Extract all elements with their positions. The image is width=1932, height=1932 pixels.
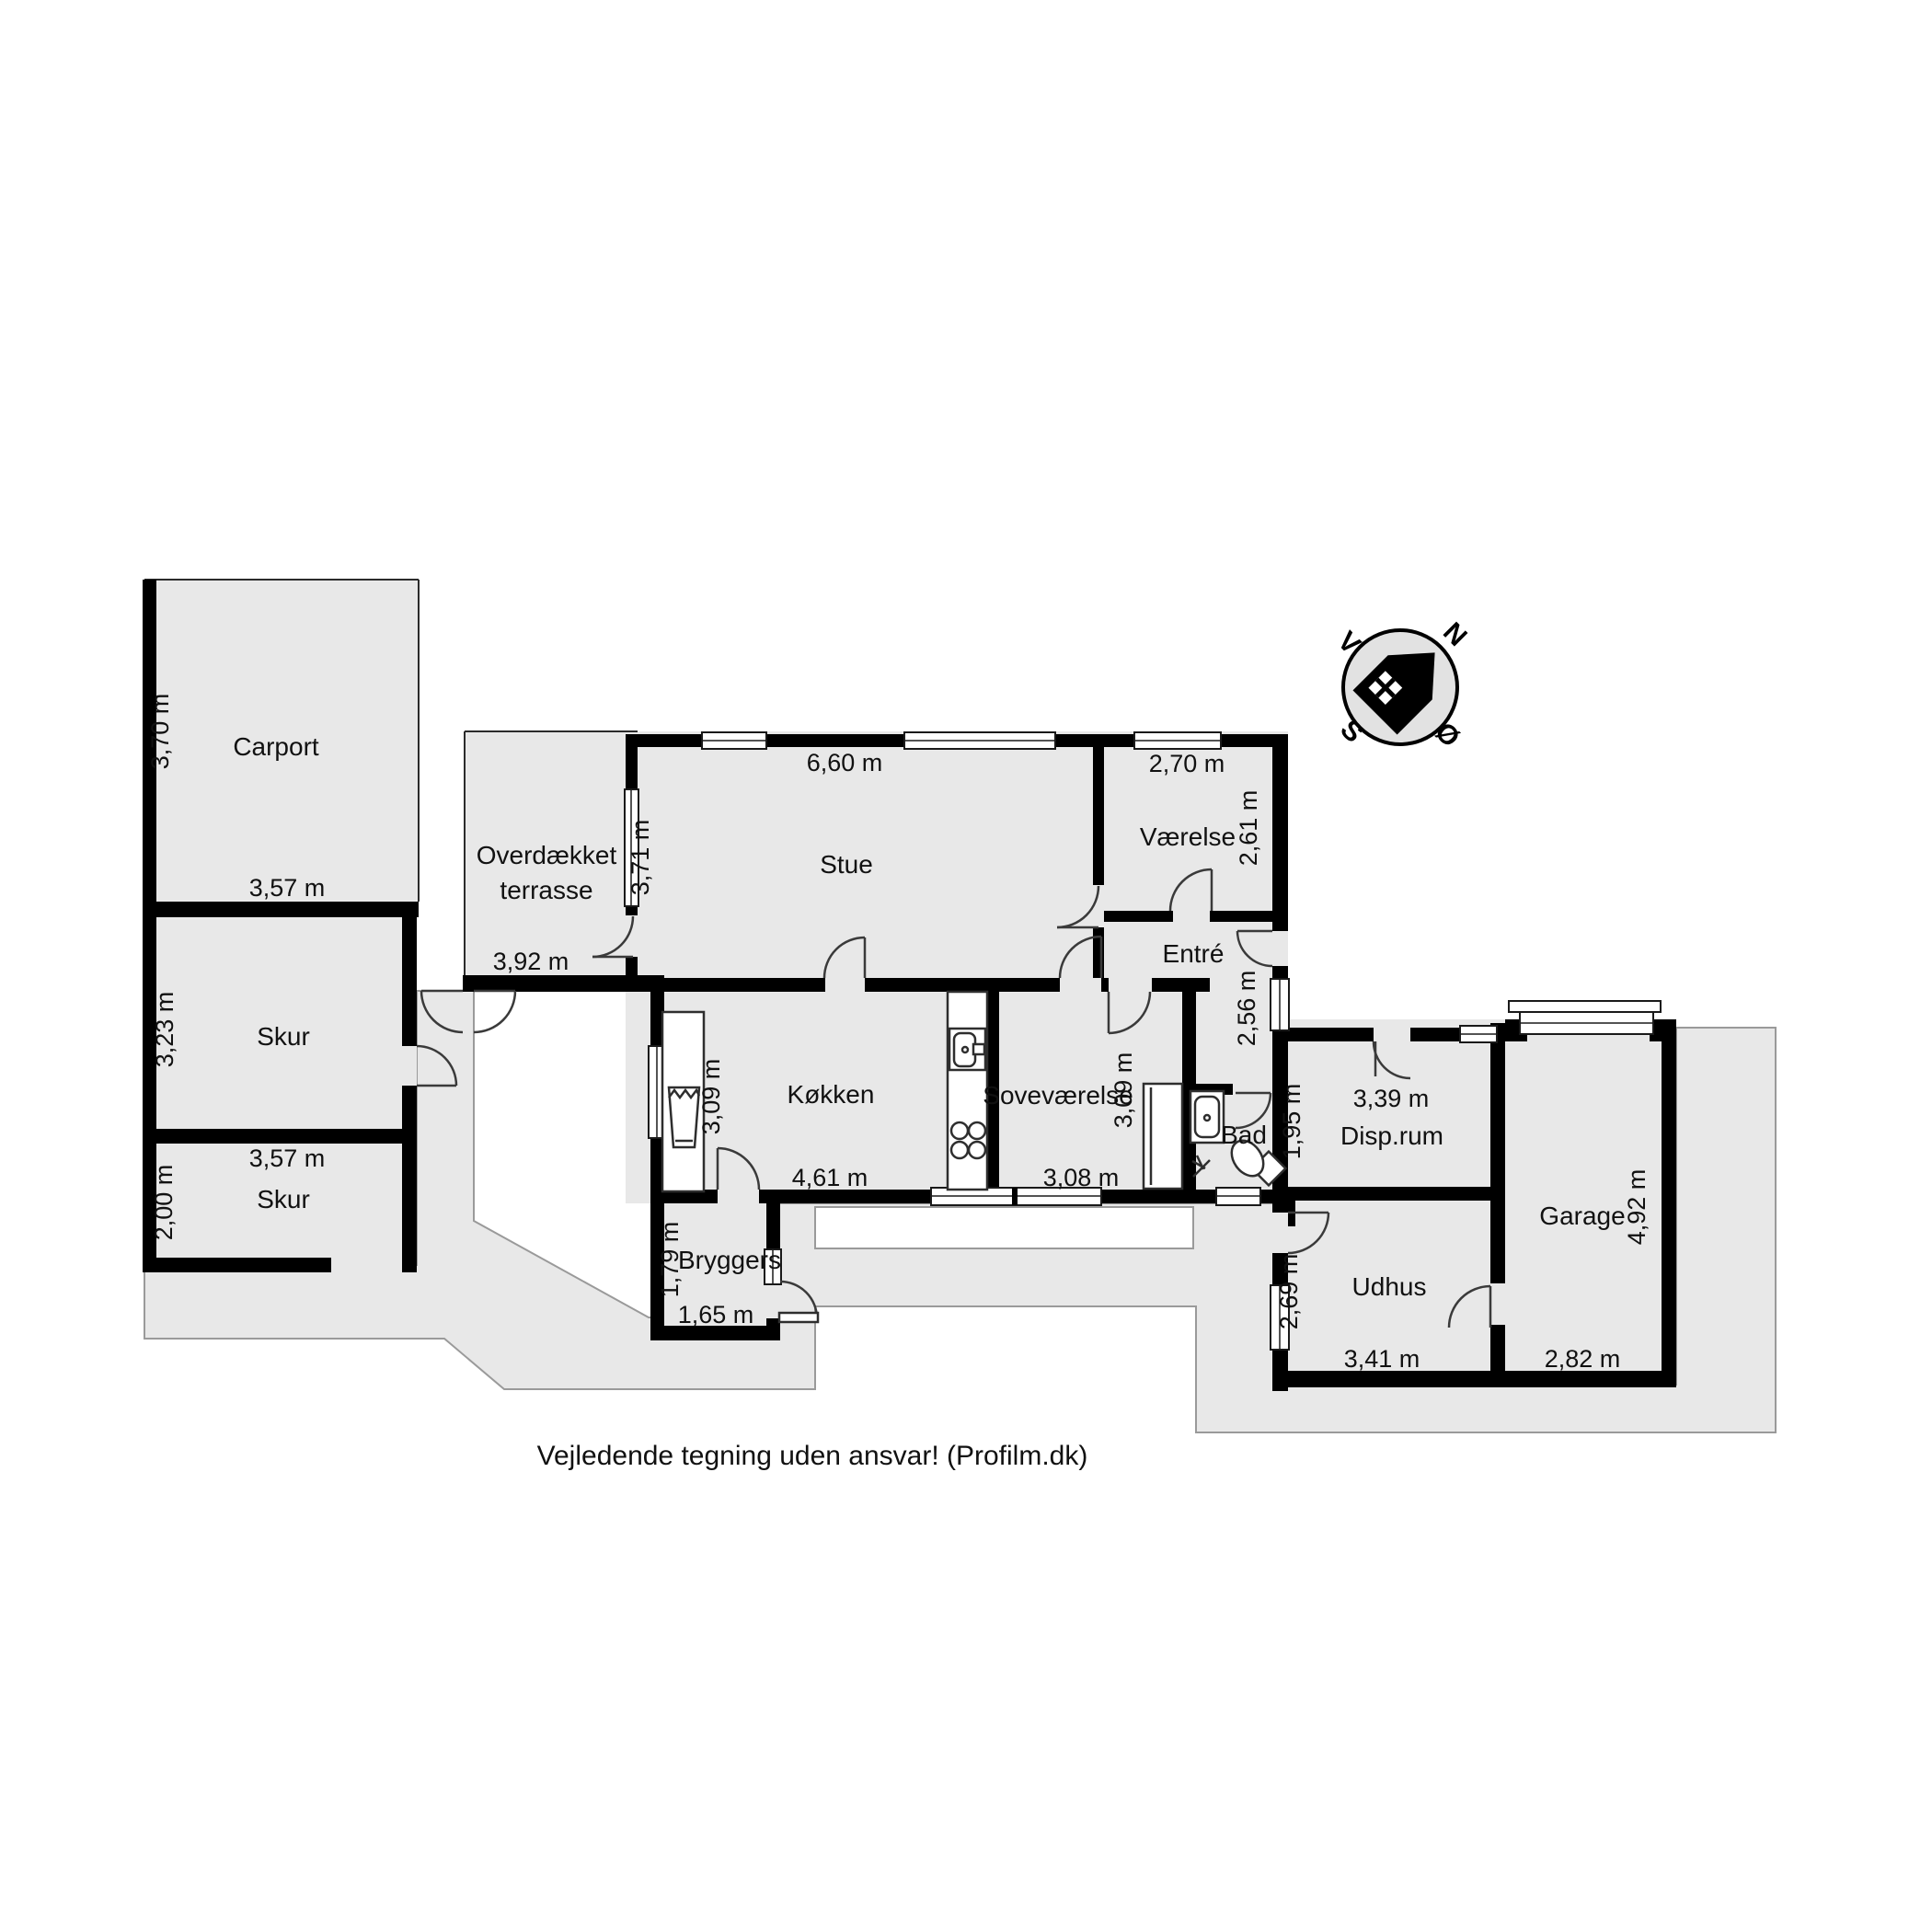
dim-carport-h: 3,57 m [249, 874, 326, 902]
dim-stue-h: 6,60 m [807, 749, 883, 776]
dim-udhus-h: 3,41 m [1344, 1345, 1420, 1373]
floor-skur [144, 902, 417, 1272]
room-label-skur1: Skur [257, 1022, 310, 1051]
room-label-bad: Bad [1221, 1121, 1267, 1149]
dim-skur2-v: 2,00 m [150, 1165, 178, 1241]
floor-plan-page: N Ø S V Carport 3,70 m 3,57 m Skur 3,23 … [0, 0, 1932, 1932]
room-label-terrasse-line1: Overdækket [477, 841, 617, 869]
dim-skur1-h: 3,57 m [249, 1144, 326, 1172]
dim-stue-v: 3,71 m [627, 820, 654, 896]
kitchen-sink-icon [949, 1029, 985, 1070]
room-label-entre: Entré [1163, 939, 1225, 968]
room-label-stue: Stue [820, 850, 873, 879]
room-label-disprum: Disp.rum [1340, 1121, 1443, 1150]
compass: N Ø S V [1331, 616, 1472, 753]
room-label-udhus: Udhus [1352, 1272, 1427, 1301]
dim-koekken-h: 4,61 m [792, 1164, 868, 1191]
dim-disprum-h: 3,39 m [1353, 1085, 1430, 1112]
garage-door-lintel [1509, 1001, 1661, 1012]
dim-sovevaerelse-v: 3,09 m [1110, 1052, 1137, 1129]
dim-sovevaerelse-h: 3,08 m [1043, 1164, 1120, 1191]
room-label-vaerelse: Værelse [1140, 822, 1236, 851]
disclaimer-text: Vejledende tegning uden ansvar! (Profilm… [537, 1441, 1088, 1471]
bath-sink-icon [1190, 1091, 1224, 1143]
front-patio [815, 1207, 1193, 1248]
dim-garage-h: 2,82 m [1545, 1345, 1621, 1373]
kitchen-counter [948, 992, 987, 1190]
dim-bryggers-h: 1,65 m [678, 1301, 754, 1328]
dim-vaerelse-h: 2,70 m [1149, 750, 1225, 777]
dim-entre-v: 2,56 m [1233, 971, 1260, 1047]
dim-garage-v: 4,92 m [1623, 1169, 1650, 1246]
dim-vaerelse-v: 2,61 m [1235, 790, 1262, 867]
room-label-bryggers: Bryggers [678, 1246, 781, 1274]
dim-koekken-v: 3,09 m [697, 1059, 725, 1135]
dim-carport-v: 3,70 m [146, 694, 174, 770]
floor-plan: N Ø S V Carport 3,70 m 3,57 m Skur 3,23 … [0, 0, 1932, 1932]
wardrobe [1144, 1084, 1182, 1189]
room-label-terrasse-line2: terrasse [500, 876, 592, 904]
room-label-koekken: Køkken [788, 1080, 875, 1109]
dim-disprum-v: 1,95 m [1278, 1084, 1305, 1160]
dim-terrasse-h: 3,92 m [493, 948, 569, 975]
dim-skur1-v: 3,23 m [151, 992, 178, 1068]
room-label-carport: Carport [233, 732, 319, 761]
dim-bryggers-v: 1,79 m [656, 1222, 684, 1298]
room-label-garage: Garage [1539, 1202, 1625, 1230]
dim-udhus-v: 2,69 m [1275, 1254, 1303, 1330]
room-label-skur2: Skur [257, 1185, 310, 1213]
